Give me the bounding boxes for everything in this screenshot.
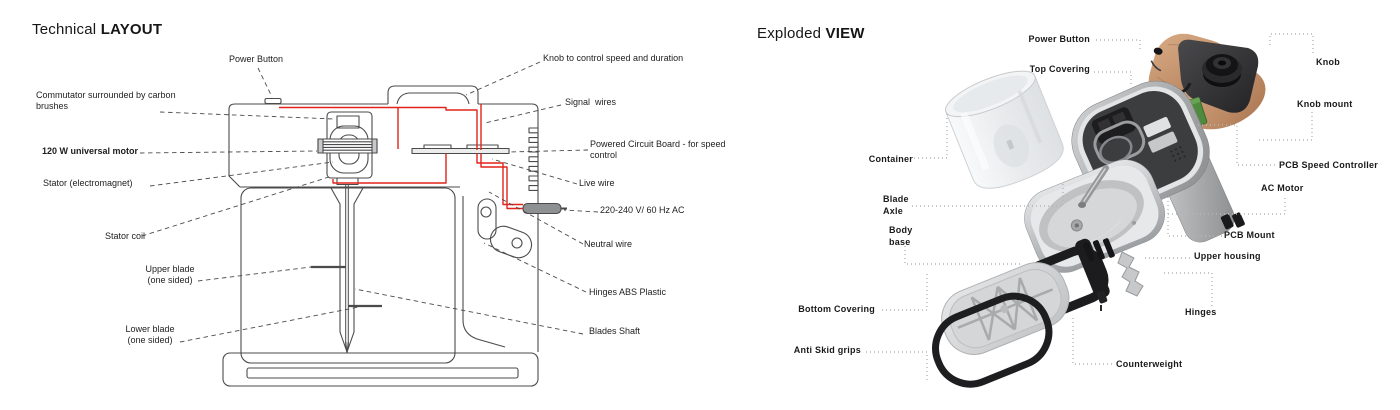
label-voltage: 220-240 V/ 60 Hz AC (600, 205, 685, 216)
exploded-view-render (866, 26, 1313, 394)
power-cord-drawing (523, 204, 567, 214)
label-r-pcb-speed: PCB Speed Controller (1279, 159, 1378, 171)
red-wiring (279, 104, 523, 209)
label-r-counterweight: Counterweight (1116, 358, 1182, 370)
label-stator: Stator (electromagnet) (43, 178, 133, 189)
label-r-anti-skid: Anti Skid grips (761, 344, 861, 356)
bottom-covering-part (933, 254, 1078, 364)
blade-shaft-drawing (311, 184, 382, 353)
motor-drawing (318, 112, 377, 185)
left-title: Technical LAYOUT (32, 21, 162, 38)
label-knob: Knob to control speed and duration (543, 53, 683, 64)
label-live-wire: Live wire (579, 178, 615, 189)
label-upper-blade: Upper blade(one sided) (138, 264, 202, 286)
label-r-top-covering: Top Covering (990, 63, 1090, 75)
container-part (940, 62, 1069, 197)
label-r-container: Container (836, 153, 913, 165)
housing-outline (229, 104, 538, 352)
label-r-pcb-mount: PCB Mount (1224, 229, 1275, 241)
right-title-regular: Exploded (757, 25, 826, 42)
label-blades-shaft: Blades Shaft (589, 326, 640, 337)
label-signal-wires: Signal wires (565, 97, 616, 108)
right-title: Exploded VIEW (757, 25, 865, 42)
label-stator-coil: Stator coil (105, 231, 145, 242)
label-lower-blade: Lower blade(one sided) (118, 324, 182, 346)
blender-technical-sheet: Technical LAYOUT Exploded VIEW Power But… (0, 0, 1400, 410)
knob-drawing (388, 86, 478, 104)
left-title-bold: LAYOUT (101, 21, 163, 38)
pcb-drawing (412, 145, 509, 154)
right-title-bold: VIEW (826, 25, 865, 42)
label-r-knob-mount: Knob mount (1297, 98, 1353, 110)
label-commutator: Commutator surrounded by carbonbrushes (36, 90, 176, 112)
left-title-regular: Technical (32, 21, 101, 38)
label-r-blade-axle: BladeAxle (883, 193, 909, 217)
technical-layout-drawing (140, 62, 598, 386)
vent-slots (529, 128, 538, 190)
label-r-bottom-covering: Bottom Covering (775, 303, 875, 315)
diagram-artwork (0, 0, 1400, 410)
label-motor: 120 W universal motor (42, 146, 138, 157)
base-outline (223, 353, 538, 386)
label-r-ac-motor: AC Motor (1261, 182, 1304, 194)
label-r-body-base: Bodybase (889, 224, 913, 248)
label-hinges-abs: Hinges ABS Plastic (589, 287, 666, 298)
label-r-upper-housing: Upper housing (1194, 250, 1261, 262)
label-r-power-button: Power Button (990, 33, 1090, 45)
housing-foot-bracket (1118, 252, 1143, 296)
power-button-drawing (265, 99, 281, 104)
label-pcb: Powered Circuit Board - for speedcontrol (590, 139, 726, 161)
label-r-hinges: Hinges (1185, 306, 1217, 318)
label-r-knob: Knob (1316, 56, 1340, 68)
label-neutral-wire: Neutral wire (584, 239, 632, 250)
label-power-button: Power Button (229, 54, 283, 65)
